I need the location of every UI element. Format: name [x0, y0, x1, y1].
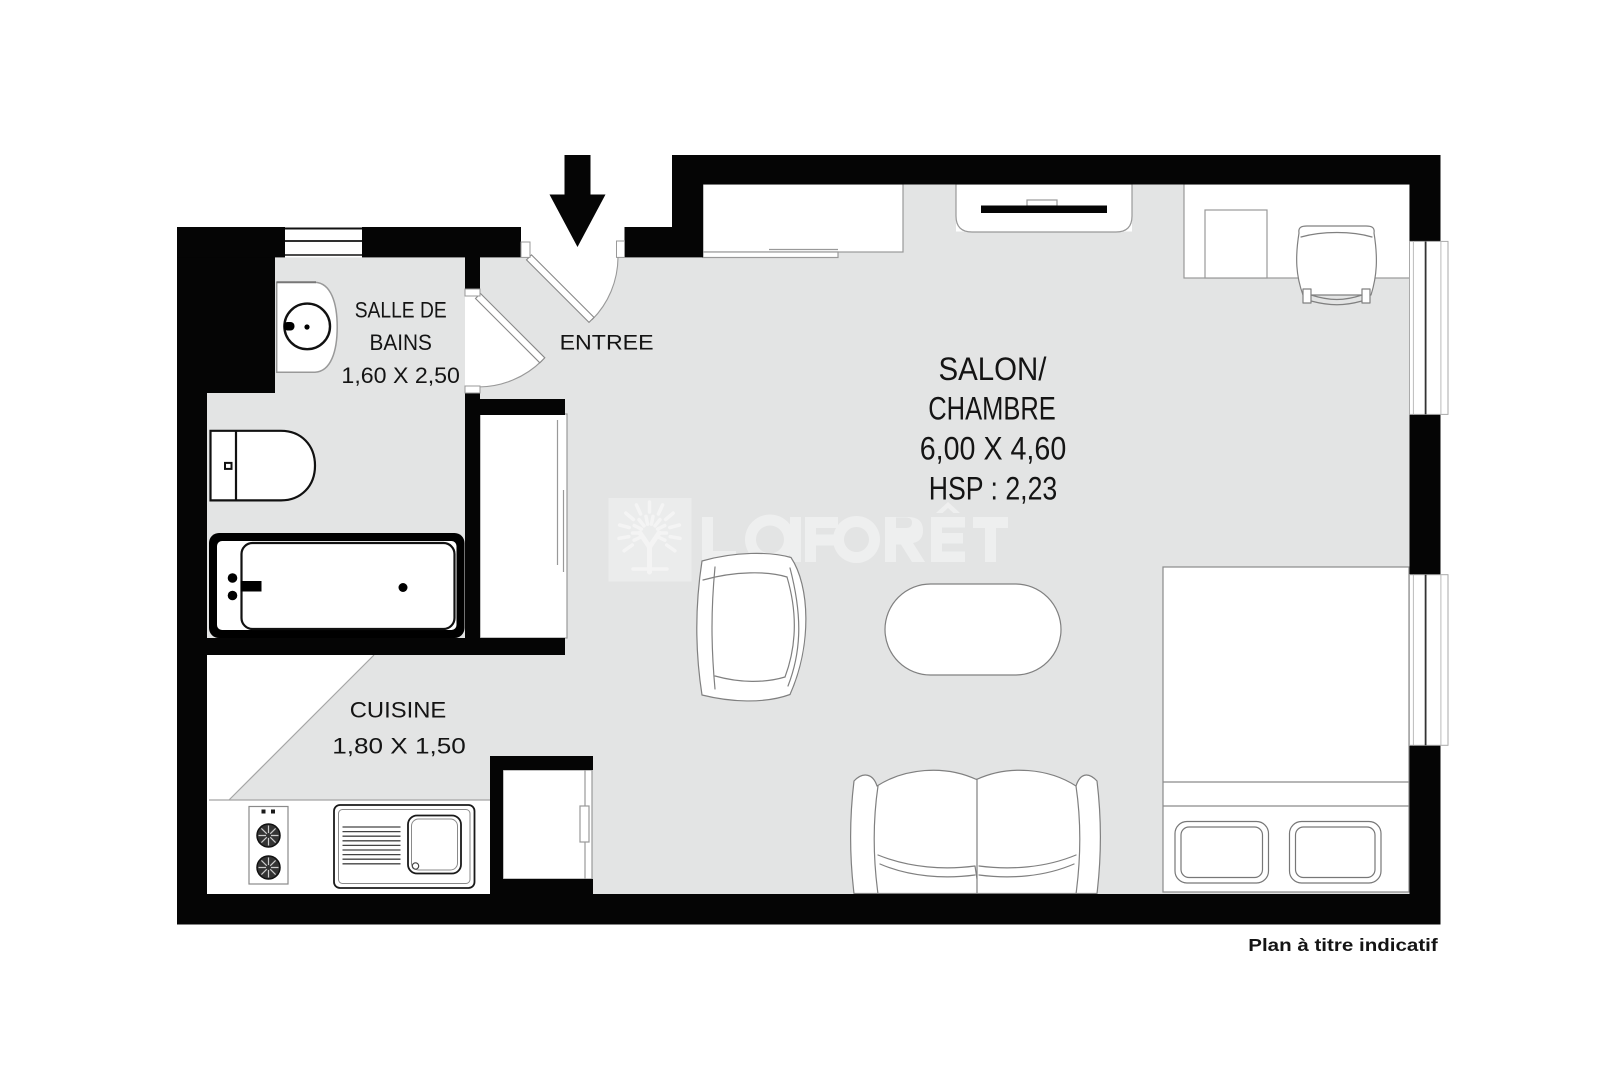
svg-text:CUISINE: CUISINE	[350, 698, 447, 723]
svg-text:ENTREE: ENTREE	[560, 332, 654, 355]
svg-text:1,80 X 1,50: 1,80 X 1,50	[332, 734, 466, 759]
svg-text:BAINS: BAINS	[369, 330, 432, 355]
svg-text:SALON/: SALON/	[939, 351, 1047, 387]
svg-text:CHAMBRE: CHAMBRE	[928, 391, 1056, 427]
svg-text:HSP : 2,23: HSP : 2,23	[929, 471, 1058, 507]
svg-text:SALLE DE: SALLE DE	[355, 298, 447, 323]
svg-text:1,60 X 2,50: 1,60 X 2,50	[341, 363, 460, 388]
svg-text:6,00 X 4,60: 6,00 X 4,60	[920, 431, 1067, 467]
svg-text:Plan à titre indicatif: Plan à titre indicatif	[1248, 935, 1438, 955]
